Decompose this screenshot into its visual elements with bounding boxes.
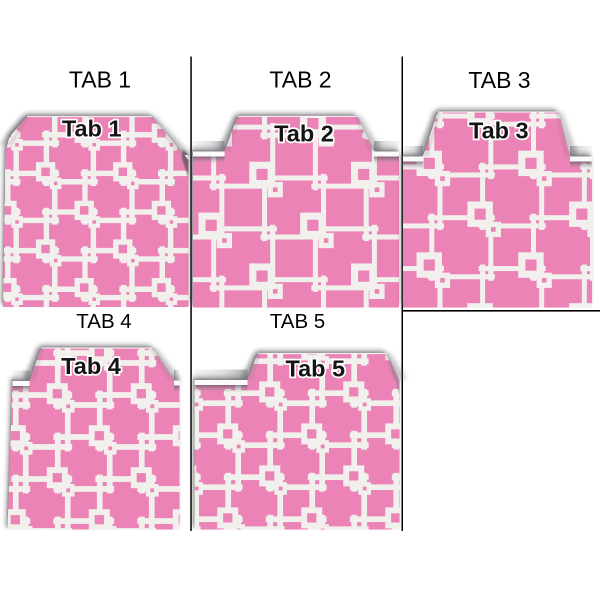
svg-text:Tab 4: Tab 4 xyxy=(61,353,121,379)
svg-text:TAB 2: TAB 2 xyxy=(269,67,331,93)
svg-text:TAB 4: TAB 4 xyxy=(76,310,131,333)
svg-text:Tab 3: Tab 3 xyxy=(469,118,529,144)
svg-text:Tab 5: Tab 5 xyxy=(285,356,345,382)
svg-text:TAB 5: TAB 5 xyxy=(270,310,325,333)
svg-text:Tab 1: Tab 1 xyxy=(62,116,122,142)
svg-text:TAB 1: TAB 1 xyxy=(69,67,131,93)
svg-text:TAB 3: TAB 3 xyxy=(468,67,530,93)
svg-text:Tab 2: Tab 2 xyxy=(274,121,334,147)
